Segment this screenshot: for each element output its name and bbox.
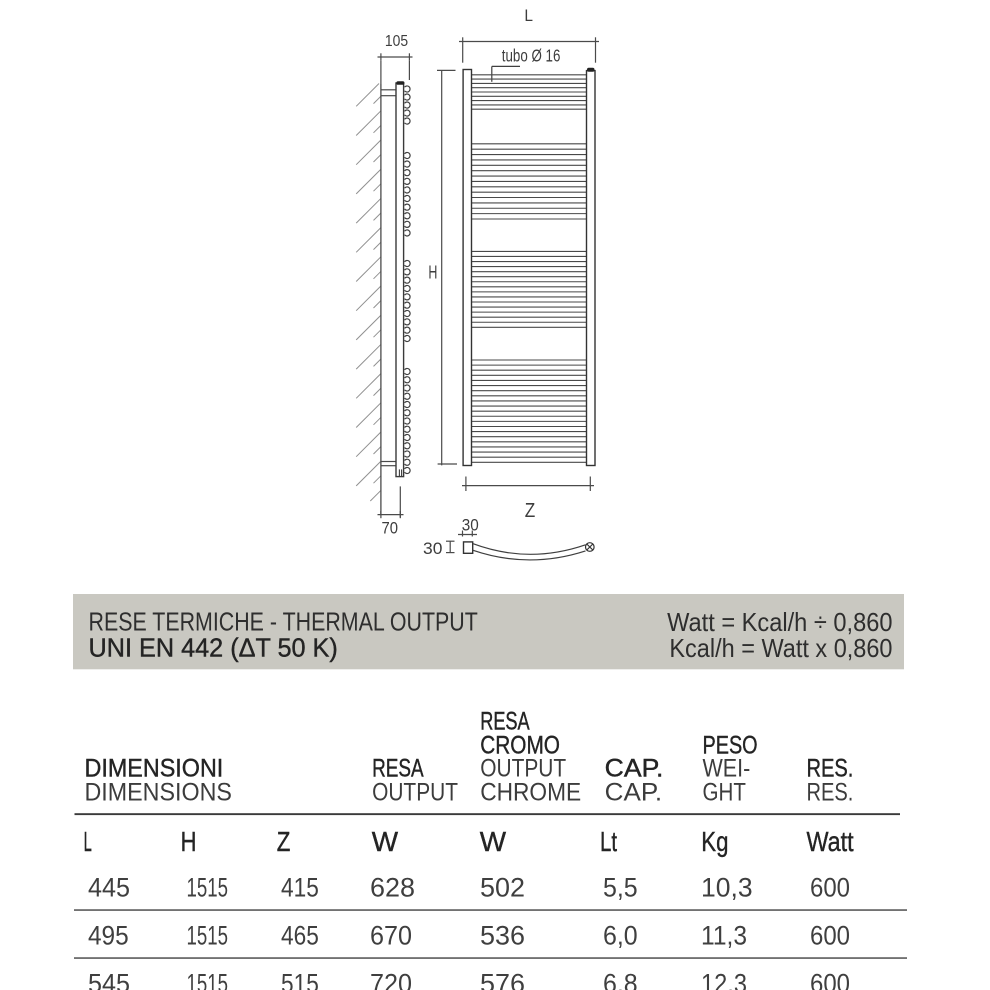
svg-text:Kg: Kg — [701, 826, 728, 857]
svg-text:30: 30 — [423, 540, 442, 558]
svg-text:L: L — [524, 6, 533, 25]
svg-text:30: 30 — [462, 516, 479, 534]
svg-text:L: L — [84, 826, 92, 857]
svg-text:Z: Z — [525, 500, 536, 522]
svg-text:W: W — [372, 826, 399, 857]
svg-text:515: 515 — [281, 969, 319, 990]
svg-text:6,8: 6,8 — [603, 969, 638, 990]
svg-text:tubo Ø 16: tubo Ø 16 — [502, 46, 561, 66]
svg-text:600: 600 — [810, 873, 850, 903]
svg-text:720: 720 — [370, 969, 412, 990]
svg-text:H: H — [428, 262, 437, 282]
svg-text:445: 445 — [88, 873, 130, 903]
svg-text:502: 502 — [480, 873, 525, 903]
svg-text:600: 600 — [810, 921, 850, 951]
svg-text:Kcal/h = Watt x 0,860: Kcal/h = Watt x 0,860 — [669, 633, 892, 663]
svg-text:H: H — [181, 826, 197, 857]
svg-text:1515: 1515 — [187, 873, 229, 903]
svg-text:70: 70 — [382, 520, 399, 538]
svg-text:W: W — [480, 826, 507, 857]
svg-text:415: 415 — [281, 873, 319, 903]
svg-text:465: 465 — [281, 921, 319, 951]
svg-text:495: 495 — [88, 921, 129, 951]
svg-text:10,3: 10,3 — [701, 873, 753, 903]
svg-text:105: 105 — [385, 33, 408, 50]
svg-text:DIMENSIONS: DIMENSIONS — [85, 779, 232, 807]
svg-text:Z: Z — [277, 826, 291, 857]
svg-text:5,5: 5,5 — [603, 873, 638, 903]
svg-text:576: 576 — [480, 969, 525, 990]
svg-text:670: 670 — [370, 921, 412, 951]
svg-text:1515: 1515 — [187, 969, 229, 990]
svg-text:OUTPUT: OUTPUT — [372, 779, 458, 807]
svg-text:1515: 1515 — [187, 921, 229, 951]
svg-text:600: 600 — [810, 969, 850, 990]
svg-text:545: 545 — [88, 969, 130, 990]
svg-text:12,3: 12,3 — [701, 969, 747, 990]
svg-text:GHT: GHT — [703, 779, 746, 807]
svg-text:CAP.: CAP. — [605, 779, 662, 807]
svg-text:CHROME: CHROME — [480, 779, 581, 807]
svg-text:Watt: Watt — [807, 826, 854, 857]
svg-text:536: 536 — [480, 921, 525, 951]
svg-text:628: 628 — [370, 873, 415, 903]
svg-text:11,3: 11,3 — [701, 921, 747, 951]
svg-text:UNI EN 442 (ΔT 50 K): UNI EN 442 (ΔT 50 K) — [89, 633, 338, 663]
svg-text:6,0: 6,0 — [603, 921, 638, 951]
svg-text:Lt: Lt — [600, 826, 617, 857]
svg-text:RES.: RES. — [807, 779, 854, 807]
